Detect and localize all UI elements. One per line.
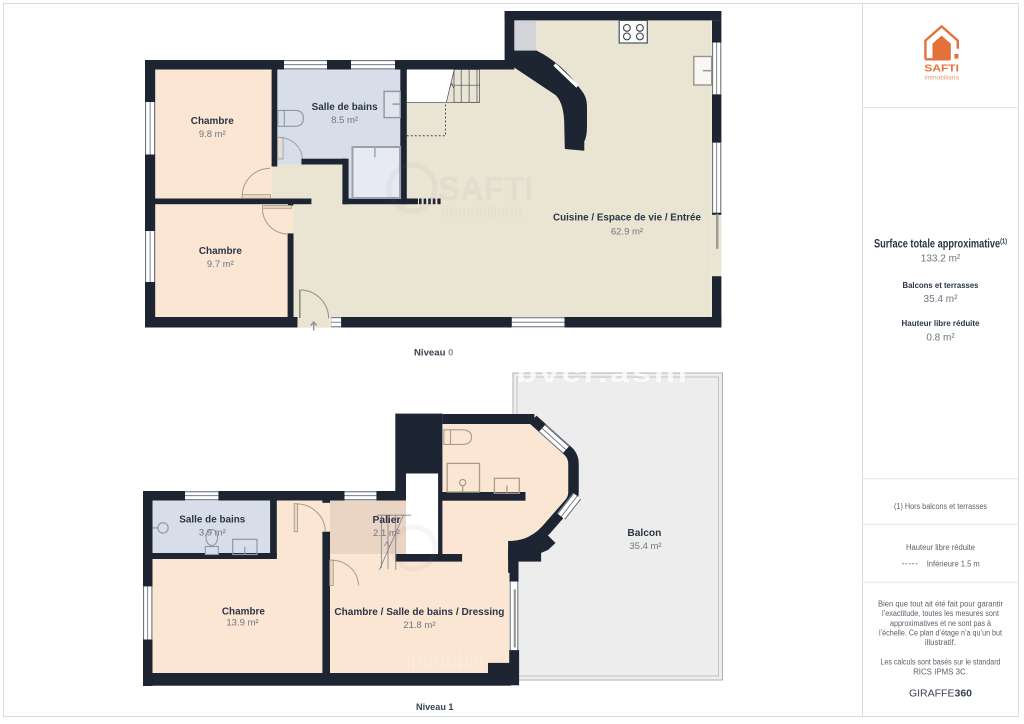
svg-text:immobili: immobili [406,650,483,673]
svg-text:Balcon: Balcon [627,528,661,539]
svg-text:GIRAFFE360: GIRAFFE360 [909,688,972,700]
svg-text:illustratif.: illustratif. [925,638,956,647]
svg-text:Bien que tout ait été fait pou: Bien que tout ait été fait pour garantir [878,600,1003,609]
svg-text:Salle de bains: Salle de bains [179,514,245,525]
svg-text:Inférieure 1.5 m: Inférieure 1.5 m [927,560,980,569]
svg-text:62.9 m²: 62.9 m² [611,227,643,238]
svg-text:Surface totale approximative(1: Surface totale approximative(1) [874,239,1007,251]
svg-text:Palier: Palier [373,515,401,526]
svg-text:Niveau 0: Niveau 0 [414,348,454,359]
svg-text:immobiliaria: immobiliaria [924,76,959,82]
svg-text:133.2 m²: 133.2 m² [921,254,961,265]
svg-text:Les calculs sont basés sur le: Les calculs sont basés sur le standard [881,658,1001,667]
svg-text:l’échelle. Ce plan d’étage n’a: l’échelle. Ce plan d’étage n’a qu’un but [879,629,1003,638]
svg-text:Chambre: Chambre [222,607,265,618]
svg-text:Cuisine / Espace de vie / Entr: Cuisine / Espace de vie / Entrée [553,213,701,224]
svg-text:SAFTI: SAFTI [438,170,533,207]
svg-text:9.7 m²: 9.7 m² [207,259,234,270]
svg-text:35.4 m²: 35.4 m² [629,541,661,552]
svg-text:l’exactitude, toutes les mesur: l’exactitude, toutes les mesures sont [882,609,1000,618]
svg-text:Salle de bains: Salle de bains [312,102,378,113]
svg-text:SAFTI: SAFTI [924,63,959,75]
svg-text:3.9 m²: 3.9 m² [199,527,226,538]
svg-text:21.8 m²: 21.8 m² [403,620,435,631]
svg-text:Chambre / Salle de bains / Dre: Chambre / Salle de bains / Dressing [334,607,504,618]
svg-text:approximatives et ne sont pas: approximatives et ne sont pas à [890,619,992,628]
svg-text:8.5 m²: 8.5 m² [331,115,358,126]
svg-text:35.4 m²: 35.4 m² [924,294,959,305]
svg-text:RICS IPMS 3C.: RICS IPMS 3C. [913,667,968,676]
svg-text:immobiliaria: immobiliaria [442,204,523,221]
svg-text:9.8 m²: 9.8 m² [199,129,226,140]
svg-text:13.9 m²: 13.9 m² [226,618,258,629]
svg-text:Balcons et terrasses: Balcons et terrasses [903,280,979,290]
svg-text:0.8 m²: 0.8 m² [926,332,955,343]
svg-text:Niveau 1: Niveau 1 [416,702,454,713]
svg-text:bvcr.asni: bvcr.asni [516,360,690,388]
svg-text:Chambre: Chambre [191,116,234,127]
svg-text:Hauteur libre réduite: Hauteur libre réduite [906,543,976,552]
svg-text:(1) Hors balcons et terrasses: (1) Hors balcons et terrasses [894,502,987,511]
svg-text:Chambre: Chambre [199,246,242,257]
svg-text:Hauteur libre réduite: Hauteur libre réduite [902,318,980,328]
